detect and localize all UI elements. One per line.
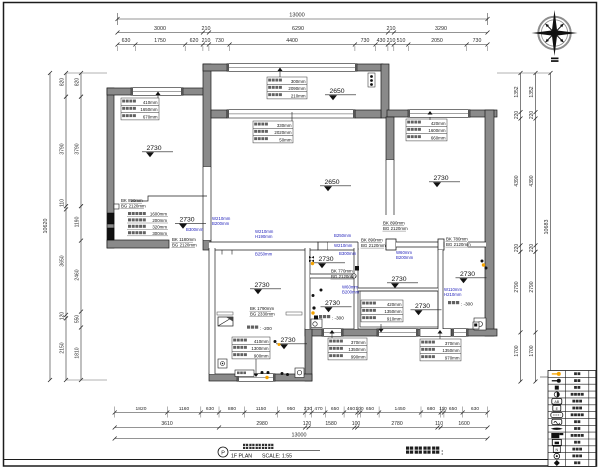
svg-text:2730: 2730	[391, 276, 406, 283]
svg-text:2650: 2650	[324, 179, 339, 186]
svg-text:650: 650	[366, 406, 374, 412]
svg-text:990mm: 990mm	[351, 355, 366, 360]
svg-text:3790: 3790	[75, 143, 81, 154]
svg-text:2730: 2730	[179, 217, 194, 224]
svg-text:1750: 1750	[154, 38, 166, 44]
svg-text:1600mm: 1600mm	[150, 212, 167, 217]
svg-text:B250mm: B250mm	[334, 233, 352, 238]
svg-text:950: 950	[287, 406, 295, 412]
svg-text:1352: 1352	[529, 86, 535, 97]
svg-text:470: 470	[314, 406, 322, 412]
svg-text:320mm: 320mm	[152, 224, 167, 229]
svg-text:730: 730	[473, 38, 482, 44]
svg-text:460: 460	[347, 406, 355, 412]
svg-text:13000: 13000	[289, 13, 305, 19]
svg-text:2730: 2730	[325, 300, 340, 307]
svg-text:420mm: 420mm	[431, 121, 446, 126]
svg-text:620: 620	[190, 38, 199, 44]
svg-text:10683: 10683	[544, 220, 550, 235]
svg-text:1580: 1580	[325, 421, 336, 427]
svg-text:: -300: : -300	[461, 302, 473, 307]
svg-text:650: 650	[449, 406, 457, 412]
svg-text:220: 220	[514, 244, 520, 253]
svg-text:430: 430	[377, 38, 386, 44]
svg-text:6290: 6290	[292, 26, 304, 32]
svg-text:730: 730	[361, 38, 370, 44]
svg-text:BG 2120mm: BG 2120mm	[121, 203, 146, 208]
svg-text:210: 210	[202, 38, 211, 44]
svg-text:2790: 2790	[514, 281, 520, 292]
svg-text:1350mm: 1350mm	[442, 348, 459, 353]
svg-text:4390: 4390	[529, 175, 535, 186]
svg-text:630: 630	[206, 406, 214, 412]
svg-text:2020mm: 2020mm	[274, 130, 291, 135]
svg-text:1600: 1600	[458, 421, 469, 427]
svg-text:1300mm: 1300mm	[251, 346, 268, 351]
svg-text:300mm: 300mm	[291, 79, 306, 84]
svg-text:1820: 1820	[136, 406, 147, 412]
svg-text:110: 110	[439, 406, 447, 412]
svg-text:630: 630	[471, 406, 479, 412]
svg-text:660mm: 660mm	[431, 136, 446, 141]
svg-text:630: 630	[122, 38, 131, 44]
svg-text:2050: 2050	[431, 38, 443, 44]
svg-text:420mm: 420mm	[387, 302, 402, 307]
svg-text:BG 2120mm: BG 2120mm	[383, 226, 408, 231]
svg-text:220: 220	[514, 111, 520, 120]
svg-text:1160: 1160	[179, 406, 190, 412]
svg-text:1700: 1700	[514, 345, 520, 356]
svg-text:B300mm: B300mm	[339, 251, 357, 256]
svg-text:900mm: 900mm	[254, 354, 269, 359]
svg-text:2790: 2790	[529, 281, 535, 292]
svg-text:910mm: 910mm	[387, 317, 402, 322]
svg-text:1F PLAN: 1F PLAN	[231, 454, 252, 460]
svg-text:BK 890mm: BK 890mm	[121, 198, 143, 203]
svg-text:300mm: 300mm	[152, 231, 167, 236]
svg-text:50mm: 50mm	[279, 138, 292, 143]
svg-text:210: 210	[387, 26, 396, 32]
svg-text:550: 550	[75, 315, 81, 324]
svg-text:BG 2330mm: BG 2330mm	[250, 311, 275, 316]
svg-text:BK 1790mm: BK 1790mm	[250, 306, 275, 311]
svg-text:210: 210	[387, 38, 396, 44]
svg-text:2730: 2730	[318, 256, 333, 263]
svg-text::: :	[441, 448, 444, 457]
svg-text:H210mm: H210mm	[444, 292, 462, 297]
svg-text:2650: 2650	[329, 88, 344, 95]
svg-text:1350mm: 1350mm	[384, 309, 401, 314]
svg-text:3290: 3290	[435, 26, 447, 32]
svg-text:: -200: : -200	[260, 326, 272, 331]
svg-text:BG 2120mm: BG 2120mm	[446, 242, 471, 247]
svg-text:: -300: : -300	[332, 316, 344, 321]
svg-text:1350mm: 1350mm	[348, 347, 365, 352]
svg-text:2730: 2730	[254, 282, 269, 289]
svg-text:1450: 1450	[395, 406, 406, 412]
svg-text:1810: 1810	[75, 347, 81, 358]
svg-text:2090mm: 2090mm	[288, 86, 305, 91]
svg-text:BG 2120mm: BG 2120mm	[361, 243, 386, 248]
svg-text:1150: 1150	[256, 406, 267, 412]
svg-text:820: 820	[75, 78, 81, 87]
svg-text:2730: 2730	[460, 271, 475, 278]
svg-text:120: 120	[60, 312, 66, 321]
svg-text:110: 110	[60, 199, 66, 207]
svg-text:10620: 10620	[43, 219, 49, 234]
svg-text:SCALE: 1:55: SCALE: 1:55	[262, 454, 292, 460]
svg-text:4390: 4390	[514, 175, 520, 186]
svg-text:1600mm: 1600mm	[428, 128, 445, 133]
svg-text:120: 120	[303, 421, 312, 427]
svg-text:210: 210	[202, 26, 211, 32]
svg-text:2460: 2460	[75, 269, 81, 280]
svg-text:BK 780mm: BK 780mm	[446, 237, 468, 242]
svg-text:13000: 13000	[292, 433, 307, 439]
svg-text:B200mm: B200mm	[396, 255, 414, 260]
svg-text:BK 890mm: BK 890mm	[361, 238, 383, 243]
svg-text:2980: 2980	[256, 421, 267, 427]
svg-text:BG 2120mm: BG 2120mm	[172, 242, 197, 247]
svg-text:650: 650	[331, 406, 339, 412]
svg-text:1650mm: 1650mm	[140, 107, 157, 112]
svg-text:BK 1180mm: BK 1180mm	[172, 237, 196, 242]
svg-text:210mm: 210mm	[291, 94, 306, 99]
svg-text:100: 100	[355, 406, 363, 412]
svg-text:410mm: 410mm	[143, 100, 158, 105]
svg-text:B200mm: B200mm	[212, 221, 230, 226]
svg-text:370mm: 370mm	[351, 340, 366, 345]
svg-text:100: 100	[352, 421, 361, 427]
svg-text:670mm: 670mm	[143, 115, 158, 120]
svg-text:1700: 1700	[529, 345, 535, 356]
svg-text:510: 510	[397, 38, 406, 44]
svg-text:AB: AB	[554, 400, 559, 404]
svg-text:3790: 3790	[60, 143, 66, 154]
svg-text:330mm: 330mm	[277, 123, 292, 128]
svg-text:410mm: 410mm	[254, 339, 269, 344]
svg-text:2730: 2730	[433, 175, 448, 182]
svg-text:4400: 4400	[286, 38, 298, 44]
svg-text:1352: 1352	[514, 86, 520, 97]
svg-text:W210mm: W210mm	[334, 243, 353, 248]
svg-text:3650: 3650	[60, 255, 66, 266]
svg-text:BK 770mm: BK 770mm	[331, 269, 353, 274]
svg-text:B300mm: B300mm	[186, 227, 204, 232]
svg-text:820: 820	[60, 78, 66, 87]
svg-text:110: 110	[435, 421, 443, 427]
svg-text:370mm: 370mm	[445, 341, 460, 346]
svg-text:730: 730	[215, 38, 224, 44]
svg-text:2730: 2730	[280, 337, 295, 344]
svg-text:220: 220	[529, 244, 535, 253]
svg-text:B250mm: B250mm	[255, 252, 273, 257]
svg-text:2780: 2780	[391, 421, 402, 427]
svg-text:680: 680	[427, 406, 435, 412]
svg-text:BK 890mm: BK 890mm	[383, 221, 405, 226]
svg-text:2150: 2150	[60, 342, 66, 353]
svg-text:200mm: 200mm	[152, 218, 167, 223]
svg-text:220: 220	[529, 111, 535, 120]
svg-text:230: 230	[304, 406, 312, 412]
svg-text:P: P	[221, 450, 225, 456]
svg-text:2730: 2730	[415, 303, 430, 310]
svg-text:1190: 1190	[75, 216, 81, 227]
svg-text:970mm: 970mm	[445, 356, 460, 361]
svg-text:3610: 3610	[161, 421, 172, 427]
svg-text:B200mm: B200mm	[342, 290, 360, 295]
svg-text:BG 2120mm: BG 2120mm	[331, 274, 356, 279]
svg-text:880: 880	[228, 406, 236, 412]
svg-text:2730: 2730	[146, 145, 161, 152]
svg-text:3000: 3000	[154, 26, 166, 32]
svg-text:N: N	[555, 448, 558, 452]
svg-text:H190mm: H190mm	[255, 234, 273, 239]
